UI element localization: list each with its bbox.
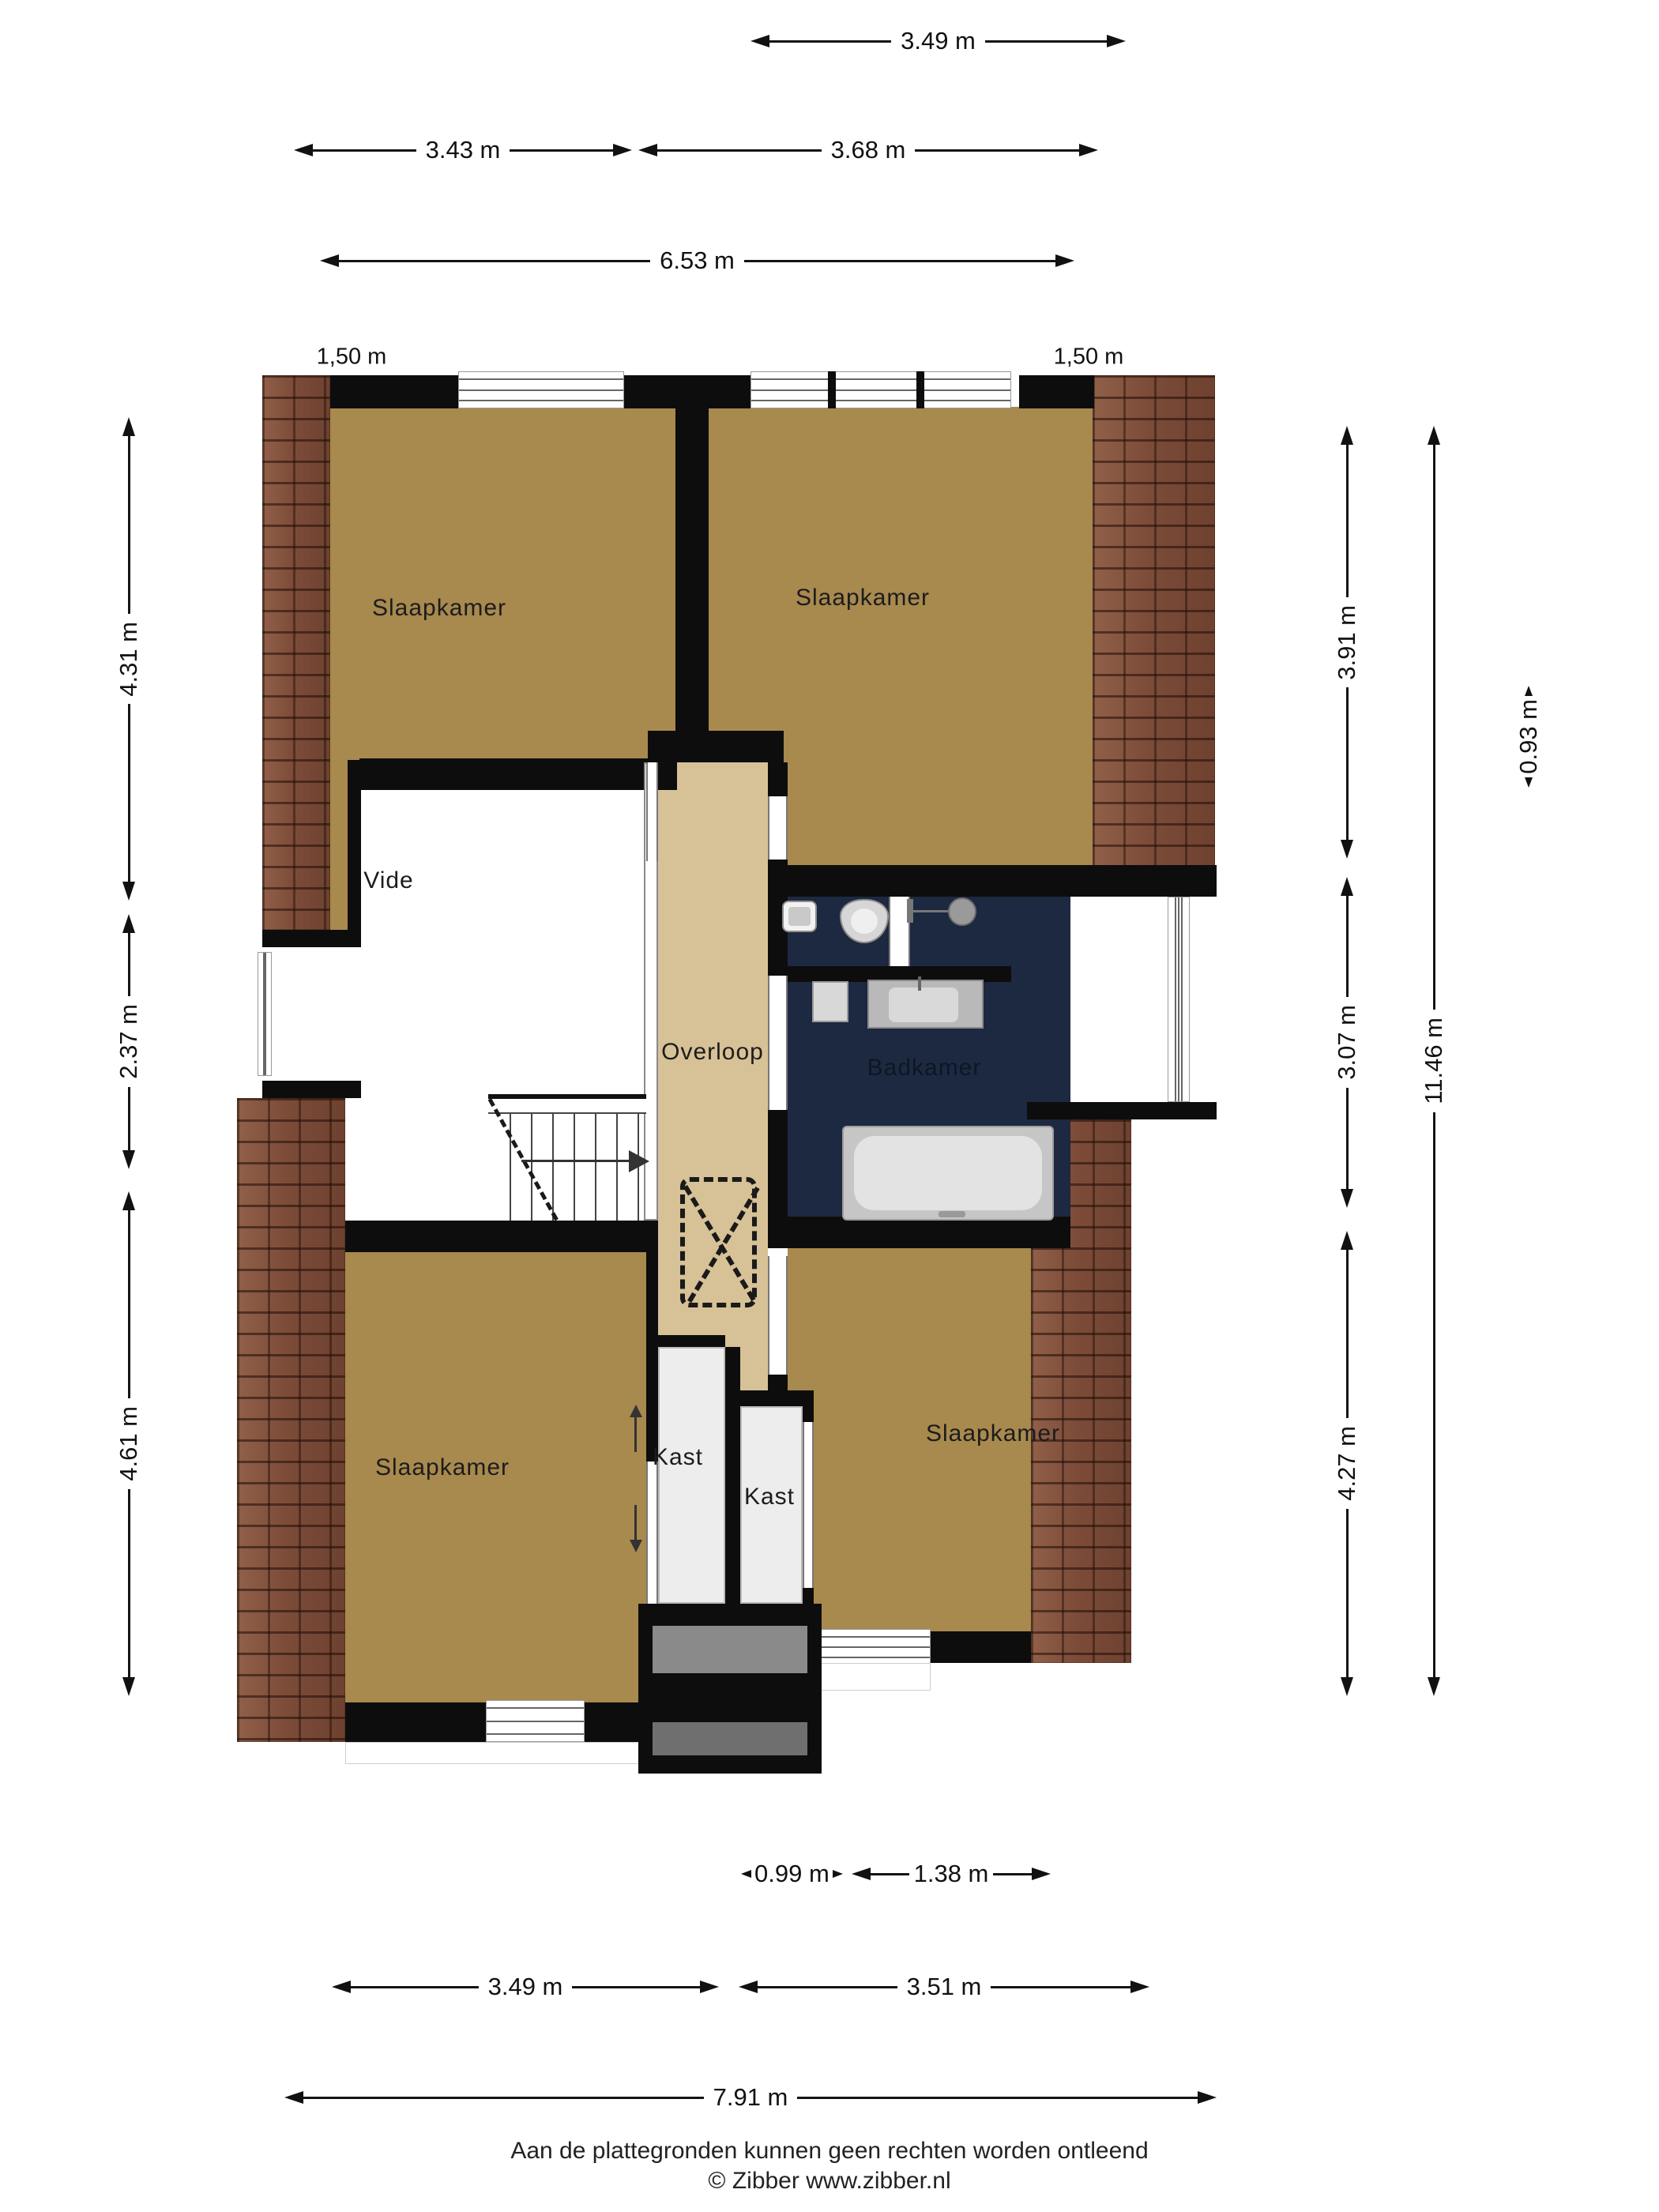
- dimension-bottom-right: 3.51 m: [739, 1973, 1149, 2001]
- room-label-overloop: Overloop: [661, 1039, 764, 1066]
- dimension-bottom-total: 7.91 m: [284, 2083, 1217, 2112]
- radiator-fixture: [812, 981, 848, 1022]
- wall-bl-bottom-2: [585, 1702, 640, 1742]
- room-label-kast-left: Kast: [653, 1444, 703, 1471]
- kast-arrow-up-icon: [630, 1405, 642, 1417]
- wall-niche-top: [262, 930, 361, 947]
- dimension-right-bottom: 4.27 m: [1330, 1231, 1364, 1696]
- floorplan-page: { "rooms": { "slaapkamer_tl": "Slaapkame…: [0, 0, 1659, 2212]
- wall-badkamer-top: [768, 865, 1217, 897]
- hand-sink-basin: [788, 907, 811, 926]
- stairs-direction-arrow-line: [521, 1160, 630, 1162]
- door-jamb-hall-topleft: [646, 762, 658, 861]
- bathtub-basin: [854, 1136, 1042, 1210]
- roof-tiles-right-upper: [1093, 375, 1215, 869]
- wall-vide-bottom: [345, 1221, 658, 1252]
- dimension-right-total: 11.46 m: [1416, 426, 1451, 1696]
- dimension-bottom-closet-left: 0.99 m: [741, 1860, 845, 1888]
- chimney-flue-top: [653, 1626, 807, 1673]
- window-top-right-mullion-2: [916, 371, 924, 408]
- wall-kast-left-top: [646, 1335, 725, 1347]
- door-jamb-bedroom-br: [768, 1256, 788, 1375]
- door-jamb-hall-topright: [768, 796, 788, 860]
- wall-niche-bottom: [262, 1081, 361, 1098]
- wall-kast-right-side-1: [803, 1406, 814, 1422]
- wall-bl-bottom-1: [345, 1702, 486, 1742]
- wall-top-b: [624, 375, 750, 408]
- kast-arrow-up-line: [634, 1414, 637, 1452]
- window-top-right-mullion-1: [828, 371, 836, 408]
- dormer-floor: [1070, 897, 1169, 1102]
- door-jamb-kast-left: [646, 1461, 658, 1604]
- dimension-top-total: 6.53 m: [320, 246, 1074, 275]
- dimension-left-mid: 2.37 m: [111, 914, 146, 1169]
- roof-tiles-left-upper: [262, 375, 330, 930]
- wall-kast-divider: [725, 1347, 740, 1604]
- window-bottom-right: [821, 1629, 931, 1665]
- chimney-flue-bottom: [653, 1722, 807, 1755]
- room-label-slaapkamer-topright: Slaapkamer: [796, 585, 930, 611]
- headroom-label-left: 1,50 m: [317, 344, 387, 371]
- room-label-slaapkamer-bottomleft: Slaapkamer: [375, 1454, 510, 1481]
- wall-dormer-bottom: [1027, 1102, 1217, 1119]
- dimension-top-wing: 3.49 m: [750, 27, 1126, 55]
- kast-arrow-down-line: [634, 1505, 637, 1543]
- window-dormer: [1168, 897, 1190, 1102]
- room-label-vide: Vide: [363, 867, 414, 894]
- wall-overloop-right-1: [768, 762, 788, 798]
- footer-copyright: © Zibber www.zibber.nl: [708, 2168, 950, 2195]
- dimension-top-left-room: 3.43 m: [294, 136, 632, 164]
- wall-niche-stub: [348, 760, 361, 930]
- wall-mid-vertical: [675, 407, 709, 762]
- roof-tiles-left-lower: [237, 1098, 345, 1742]
- wall-badkamer-bottom: [768, 1217, 1070, 1248]
- window-vide-niche: [258, 952, 272, 1076]
- room-slaapkamer-topleft-floor-ext: [330, 760, 349, 930]
- window-top-left: [458, 371, 624, 408]
- dimension-bottom-closet-right: 1.38 m: [852, 1860, 1051, 1888]
- dimension-left-bottom: 4.61 m: [111, 1191, 146, 1696]
- headroom-label-right: 1,50 m: [1054, 344, 1124, 371]
- wall-top-a: [330, 375, 458, 408]
- shower-fixture-valve: [907, 899, 913, 923]
- wall-overloop-top: [648, 731, 784, 762]
- window-top-right: [750, 371, 1011, 408]
- room-label-badkamer: Badkamer: [867, 1055, 982, 1082]
- wall-badkamer-left-2: [768, 1110, 788, 1217]
- dimension-top-right-room: 3.68 m: [638, 136, 1098, 164]
- dimension-right-top: 3.91 m: [1330, 426, 1364, 859]
- dimension-right-mid: 3.07 m: [1330, 877, 1364, 1208]
- shower-fixture-head: [948, 897, 976, 926]
- door-jamb-kast-right: [803, 1422, 814, 1588]
- sill-bottom-left: [345, 1742, 640, 1764]
- footer-disclaimer: Aan de plattegronden kunnen geen rechten…: [510, 2138, 1148, 2165]
- bathtub-tap: [939, 1211, 965, 1217]
- bathtub-fixture: [842, 1126, 1054, 1221]
- dimension-left-top: 4.31 m: [111, 417, 146, 901]
- washbasin-bowl: [889, 987, 958, 1022]
- room-label-slaapkamer-bottomright: Slaapkamer: [926, 1420, 1060, 1447]
- wall-kast-right-top: [725, 1390, 814, 1406]
- room-label-slaapkamer-topleft: Slaapkamer: [372, 595, 506, 622]
- hand-sink-fixture: [782, 901, 817, 932]
- dimension-dormer-depth: 0.93 m: [1511, 686, 1546, 792]
- wall-tl-bottom: [359, 758, 677, 790]
- washbasin-tap: [918, 976, 921, 991]
- wall-hall-left-lower: [646, 1252, 658, 1461]
- toilet-bowl: [851, 908, 878, 934]
- room-kast-left-floor: [658, 1347, 725, 1604]
- stairs-direction-arrow-icon: [629, 1150, 649, 1172]
- door-jamb-badkamer: [768, 976, 788, 1110]
- room-slaapkamer-topleft-floor: [330, 407, 677, 760]
- wall-br-bottom-2: [931, 1631, 1031, 1663]
- washbasin-fixture: [867, 980, 984, 1029]
- dimension-bottom-left: 3.49 m: [332, 1973, 719, 2001]
- room-label-kast-right: Kast: [744, 1484, 795, 1510]
- window-bottom-left: [486, 1700, 585, 1742]
- staircase-landing: [488, 1094, 646, 1114]
- kast-arrow-down-icon: [630, 1540, 642, 1552]
- vide-niche-floor: [262, 946, 361, 1081]
- wall-top-c: [1019, 375, 1094, 408]
